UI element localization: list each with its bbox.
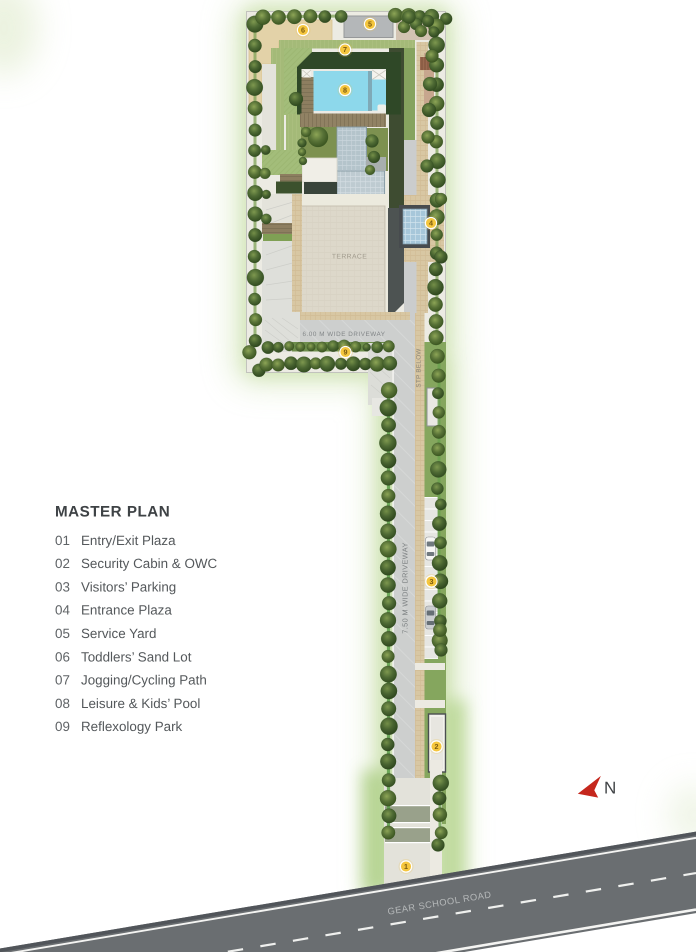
svg-text:06: 06 (55, 649, 70, 664)
svg-text:STP BELOW: STP BELOW (416, 348, 423, 387)
svg-text:5: 5 (368, 20, 372, 29)
svg-text:07: 07 (55, 673, 70, 688)
svg-text:Leisure & Kids’ Pool: Leisure & Kids’ Pool (81, 696, 200, 711)
svg-text:Service Yard: Service Yard (81, 626, 156, 641)
svg-text:Visitors’ Parking: Visitors’ Parking (81, 579, 176, 594)
svg-text:03: 03 (55, 579, 70, 594)
svg-text:4: 4 (429, 219, 433, 228)
svg-text:Toddlers’ Sand Lot: Toddlers’ Sand Lot (81, 649, 192, 664)
svg-text:Jogging/Cycling Path: Jogging/Cycling Path (81, 673, 207, 688)
svg-text:8: 8 (343, 86, 347, 95)
svg-text:7.50 M WIDE DRIVEWAY: 7.50 M WIDE DRIVEWAY (401, 542, 410, 634)
svg-text:Entry/Exit Plaza: Entry/Exit Plaza (81, 533, 176, 548)
svg-text:6.00 M WIDE DRIVEWAY: 6.00 M WIDE DRIVEWAY (302, 331, 385, 338)
svg-text:Entrance Plaza: Entrance Plaza (81, 603, 172, 618)
svg-text:04: 04 (55, 603, 70, 618)
svg-text:2: 2 (435, 742, 439, 751)
svg-text:Security Cabin & OWC: Security Cabin & OWC (81, 556, 218, 571)
svg-text:08: 08 (55, 696, 70, 711)
svg-text:Reflexology Park: Reflexology Park (81, 719, 183, 734)
svg-text:3: 3 (430, 577, 434, 586)
svg-text:MASTER PLAN: MASTER PLAN (55, 504, 170, 521)
svg-text:09: 09 (55, 719, 70, 734)
svg-text:9: 9 (344, 348, 348, 357)
svg-text:02: 02 (55, 556, 70, 571)
svg-text:TERRACE: TERRACE (332, 254, 367, 261)
svg-text:6: 6 (301, 26, 305, 35)
svg-text:7: 7 (343, 45, 347, 54)
svg-text:05: 05 (55, 626, 70, 641)
svg-text:N: N (604, 779, 616, 798)
svg-text:1: 1 (404, 862, 408, 871)
svg-text:01: 01 (55, 533, 70, 548)
